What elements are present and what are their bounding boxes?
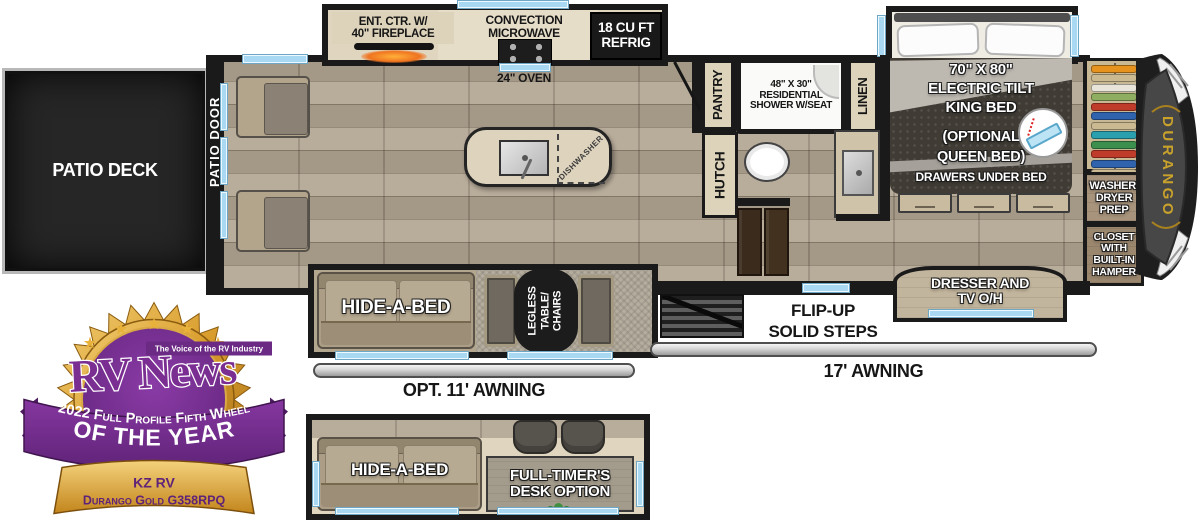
dishwasher-label: DISHWASHER xyxy=(558,134,606,182)
badge-star-icon: ★ xyxy=(181,321,194,337)
bed-slide-out xyxy=(886,6,1078,64)
dresser-tv: DRESSER AND TV O/H xyxy=(893,266,1067,322)
closet-hamper-label: CLOSET WITH BUILT-IN HAMPER xyxy=(1092,232,1136,278)
clothes-hanger xyxy=(1091,74,1137,82)
flip-up-steps xyxy=(660,294,744,338)
bath-vanity xyxy=(834,130,880,218)
entertainment-center-label: ENT. CTR. W/ 40" FIREPLACE xyxy=(332,12,454,44)
pantry: PANTRY xyxy=(700,58,736,132)
bed-drawers-label: DRAWERS UNDER BED xyxy=(890,171,1072,184)
kitchen-island: DISHWASHER xyxy=(464,127,612,187)
wardrobe xyxy=(1084,58,1144,172)
awning-bar-11ft xyxy=(313,363,635,378)
clothes-hanger xyxy=(1091,141,1137,149)
recliner-chair xyxy=(236,190,310,252)
clothes-hanger xyxy=(1091,112,1137,120)
badge-star-icon: ★ xyxy=(115,321,128,337)
oven-window xyxy=(500,64,550,71)
microwave-label: CONVECTION MICROWAVE xyxy=(454,14,594,42)
kitchen-slide-window xyxy=(458,1,568,8)
option-hide-a-bed-sofa: HIDE-A-BED xyxy=(317,437,482,511)
bed-headboard xyxy=(894,13,1070,22)
king-bed: 70" X 80" ELECTRIC TILT KING BED (OPTION… xyxy=(890,58,1072,194)
dresser-window xyxy=(929,310,1033,317)
rear-window xyxy=(243,55,307,63)
refrigerator: 18 CU FT REFRIG xyxy=(590,12,662,60)
front-cap: DURANGO xyxy=(1136,54,1200,280)
living-slide-out: HIDE-A-BED LEGLESS TABLE/ CHAIRS xyxy=(308,264,658,358)
bedroom-window xyxy=(878,16,885,56)
legless-table-label: LEGLESS TABLE/ CHAIRS xyxy=(527,286,565,335)
hide-a-bed-label: HIDE-A-BED xyxy=(319,298,473,319)
clothes-hanger xyxy=(1091,131,1137,139)
recliner-chair xyxy=(236,76,310,138)
shower: 48" X 30" RESIDENTIAL SHOWER W/SEAT xyxy=(736,58,846,134)
badge-star-icon: ★ xyxy=(84,335,97,351)
oven-label: 24" OVEN xyxy=(470,72,578,85)
durango-brand-label: DURANGO xyxy=(1159,116,1176,218)
patio-door-window xyxy=(221,84,227,130)
kitchen-slide-out: ENT. CTR. W/ 40" FIREPLACE CONVECTION MI… xyxy=(322,4,668,66)
patio-deck: PATIO DECK xyxy=(2,68,208,274)
awning-17ft-label: 17' AWNING xyxy=(650,362,1097,381)
option-window xyxy=(336,508,458,514)
clothes-hanger xyxy=(1091,122,1137,130)
desk-option-plan: HIDE-A-BED FULL-TIMER'S DESK OPTION xyxy=(306,414,650,520)
badge-model: Durango Gold G358RPQ xyxy=(83,494,226,508)
under-bed-drawer xyxy=(957,193,1011,213)
legless-table: LEGLESS TABLE/ CHAIRS xyxy=(514,269,578,353)
fireplace-glow xyxy=(361,50,427,63)
clothes-hanger xyxy=(1091,65,1137,73)
option-window xyxy=(637,462,643,506)
under-bed-drawer xyxy=(1016,193,1070,213)
bed-pillow xyxy=(984,23,1065,58)
awning-bar-17ft xyxy=(650,342,1097,357)
washer-dryer-prep: WASHER/ DRYER PREP xyxy=(1084,172,1144,224)
patio-door-window xyxy=(221,138,227,184)
shower-label: 48" X 30" RESIDENTIAL SHOWER W/SEAT xyxy=(750,80,832,112)
desk-chair xyxy=(561,420,605,454)
toilet xyxy=(744,142,790,182)
bedroom-window xyxy=(1071,16,1078,56)
clothes-hanger xyxy=(1091,103,1137,111)
option-hide-a-bed-label: HIDE-A-BED xyxy=(319,461,480,480)
patio-deck-label: PATIO DECK xyxy=(52,161,157,181)
badge-maker: KZ RV xyxy=(133,475,175,491)
interior-steps xyxy=(736,198,790,278)
rv-news-logo: RV News xyxy=(68,342,238,402)
fireplace-mantel xyxy=(354,43,434,50)
linen-closet: LINEN xyxy=(846,58,880,134)
clothes-hanger xyxy=(1091,160,1137,168)
bedroom-wall xyxy=(880,55,890,217)
sink xyxy=(499,140,549,176)
faucet-icon xyxy=(520,158,532,179)
full-timers-desk-label: FULL-TIMER'S DESK OPTION xyxy=(510,468,610,501)
living-slide-window xyxy=(336,352,468,359)
dresser-tv-label: DRESSER AND TV O/H xyxy=(897,276,1063,307)
hutch: HUTCH xyxy=(702,132,738,218)
dinette-bench xyxy=(484,275,518,347)
clothes-hanger xyxy=(1091,93,1137,101)
clothes-hanger xyxy=(1091,84,1137,92)
award-badge: ★★★★★★★★ The Voice of the RV Industry RV… xyxy=(18,300,290,527)
tilt-bed-inset-icon xyxy=(1018,108,1068,158)
door-side-window xyxy=(803,284,849,292)
flip-up-steps-label: FLIP-UP SOLID STEPS xyxy=(748,300,898,343)
patio-door-window xyxy=(221,192,227,238)
under-bed-drawer xyxy=(898,193,952,213)
bath-wall xyxy=(836,214,890,221)
refrigerator-label: 18 CU FT REFRIG xyxy=(598,21,654,51)
living-slide-window xyxy=(508,352,612,359)
stove-cooktop xyxy=(498,39,552,65)
option-window xyxy=(313,462,319,506)
clothes-hanger xyxy=(1091,150,1137,158)
dishwasher-area: DISHWASHER xyxy=(557,134,605,184)
rv-floorplan-canvas: PATIO DECK PATIO DOOR ENT. CTR. W/ 40" F… xyxy=(0,0,1200,527)
hide-a-bed-sofa: HIDE-A-BED xyxy=(317,272,475,349)
option-window xyxy=(498,508,618,514)
vanity-sink xyxy=(842,150,874,196)
closet-hamper: CLOSET WITH BUILT-IN HAMPER xyxy=(1084,224,1144,286)
full-timers-desk: FULL-TIMER'S DESK OPTION xyxy=(486,456,634,512)
badge-star-icon: ★ xyxy=(148,316,161,332)
bed-pillow xyxy=(896,23,979,58)
awning-11ft-label: OPT. 11' AWNING xyxy=(313,381,635,400)
washer-dryer-label: WASHER/ DRYER PREP xyxy=(1089,180,1138,216)
dinette-bench xyxy=(578,275,614,347)
desk-chair xyxy=(513,420,557,454)
